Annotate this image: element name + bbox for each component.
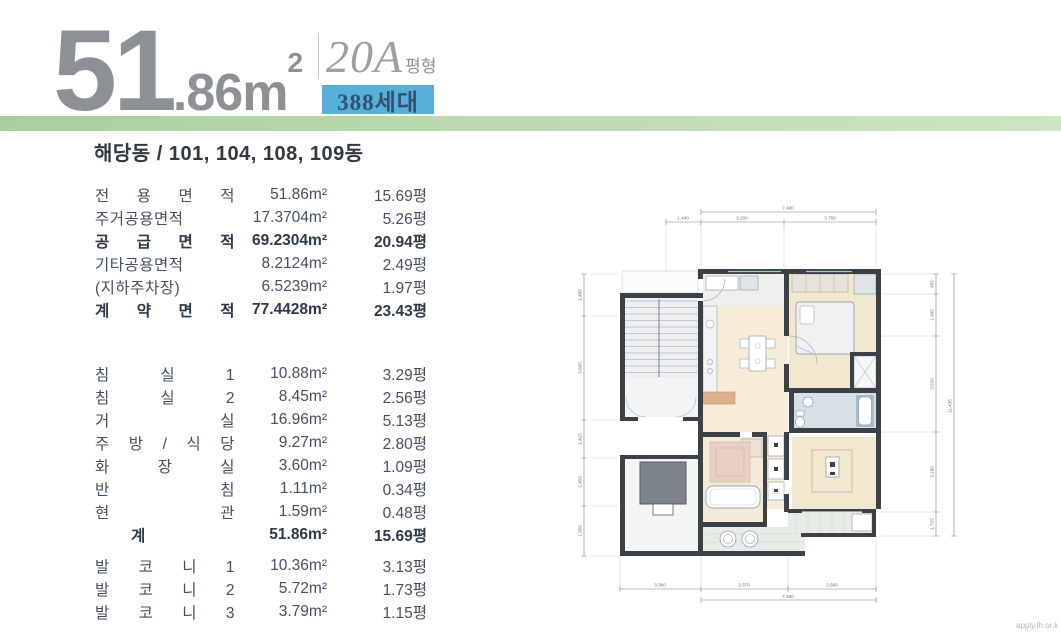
table-row: 발 코 니 33.79m²1.15평 [95,600,427,623]
svg-text:1.440: 1.440 [677,216,689,221]
area-title-decimal: .86m [173,64,288,122]
svg-text:3.360: 3.360 [654,583,666,588]
brochure-page: 51.86m2 20A평형 388세대 해당동 / 101, 104, 108,… [0,0,1061,636]
desk-item [830,472,835,475]
table-row: 기타공용면적8.2124m²2.49평 [95,252,427,275]
svg-text:1.415: 1.415 [578,433,583,445]
svg-text:3.760: 3.760 [824,216,836,221]
svg-text:7.400: 7.400 [782,206,794,211]
unit-type-suffix: 평형 [405,57,436,76]
svg-text:11.435: 11.435 [948,399,953,413]
svg-text:3.605: 3.605 [578,362,583,374]
vertical-divider [318,33,319,79]
watermark: apply.lh.or.k [1016,621,1058,630]
balcony-window [852,514,872,531]
table-row: 발 코 니 25.72m²1.73평 [95,577,427,600]
elevator-car [640,462,686,504]
shoe-cabinet [706,276,738,290]
table-row: 공 급 면 적69.2304m²20.94평 [95,229,427,252]
svg-text:3.200: 3.200 [736,216,748,221]
floor-plan-drawing: 7.400 1.440 3.200 3.760 3.360 3.370 3.60… [556,196,1026,626]
bedroom1-cabinet [854,274,876,294]
area-table: 전 용 면 적51.86m²15.69평 주거공용면적17.3704m²5.26… [95,183,427,623]
svg-text:3.520: 3.520 [930,378,935,390]
washer2 [742,531,758,547]
table-row: 발 코 니 110.36m²3.13평 [95,554,427,577]
svg-text:1.495: 1.495 [578,289,583,301]
area-title-superscript: 2 [287,47,303,78]
table-row: 화 장 실3.60m²1.09평 [95,454,427,477]
stair-landing [622,378,698,417]
bathtub [859,397,872,425]
counter-island [703,392,735,404]
table-row: 반 침1.11m²0.34평 [95,477,427,500]
svg-text:2.450: 2.450 [578,476,583,488]
pillow [800,306,814,324]
table-row: 주 방 / 식 당9.27m²2.80평 [95,431,427,454]
stair-vestibule [622,271,698,293]
table-row: 현 관1.59m²0.48평 [95,500,427,523]
table-row: 거 실16.96m²5.13평 [95,408,427,431]
table-row: 주거공용면적17.3704m²5.26평 [95,206,427,229]
kitchen-sink [706,320,714,328]
area-title: 51.86m2 [53,14,303,129]
entry-closet [740,276,758,290]
households-badge: 388세대 [322,85,434,114]
cabinet-column [768,436,784,500]
elevator-door [653,504,673,515]
svg-text:3.600: 3.600 [826,583,838,588]
table-row: 계 약 면 적77.4428m²23.43평 [95,298,427,321]
desk-monitor [830,462,835,467]
dining-table [749,336,766,371]
svg-text:7.460: 7.460 [782,594,794,599]
svg-text:3.180: 3.180 [930,466,935,478]
washbasin [803,397,813,407]
table-row: 침 실 28.45m²2.56평 [95,385,427,408]
type-block: 20A평형 388세대 [318,30,436,114]
washer [720,531,736,547]
toilet [796,417,805,428]
table-row: 전 용 면 적51.86m²15.69평 [95,183,427,206]
svg-text:455: 455 [930,280,935,288]
table-row: 침 실 110.88m²3.29평 [95,362,427,385]
building-list: 해당동 / 101, 104, 108, 109동 [94,137,364,166]
svg-text:1.485: 1.485 [930,309,935,321]
table-row: (지하주차장)6.5239m²1.97평 [95,275,427,298]
green-divider-bar [0,116,1061,131]
svg-text:3.370: 3.370 [738,583,750,588]
svg-text:1.725: 1.725 [930,518,935,530]
toilet-tank [796,411,804,416]
unit-type-code: 20A [326,31,403,82]
svg-text:1.350: 1.350 [578,525,583,537]
floor-plan: 7.400 1.440 3.200 3.760 3.360 3.370 3.60… [556,196,1026,626]
table-row-total: 계51.86m²15.69평 [95,523,427,546]
